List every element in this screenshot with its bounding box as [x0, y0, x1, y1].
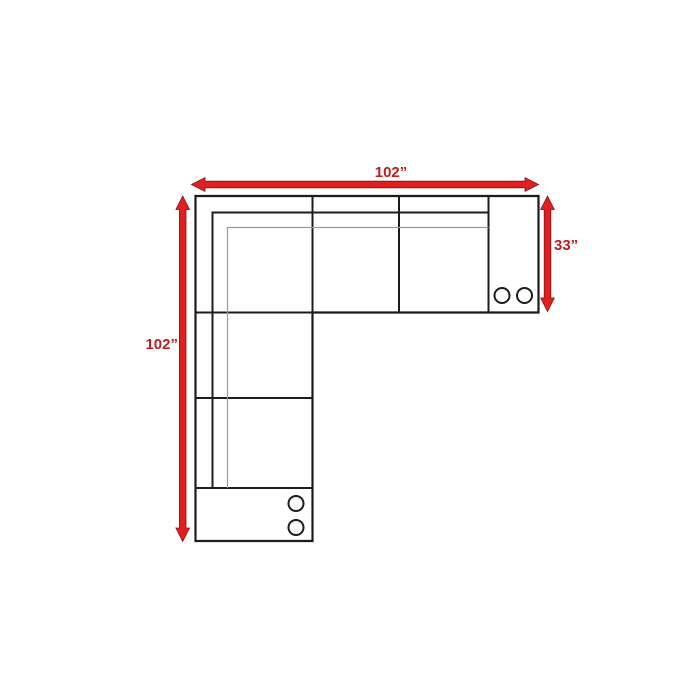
sectional-sofa-dimension-diagram: 102” 102” 33” [0, 0, 700, 700]
right-depth-label: 33” [554, 237, 578, 254]
right-depth-arrow [541, 196, 555, 312]
top-width-label: 102” [375, 164, 408, 181]
left-height-label: 102” [145, 336, 178, 353]
cupholder-circle [495, 288, 510, 303]
left-height-arrow [176, 196, 190, 542]
diagram-canvas: 102” 102” 33” [0, 0, 700, 700]
sofa-outline [196, 196, 539, 541]
cupholder-circle [517, 288, 532, 303]
cupholder-circle [289, 496, 304, 511]
top-width-arrow [192, 178, 539, 192]
cupholder-circle [289, 520, 304, 535]
